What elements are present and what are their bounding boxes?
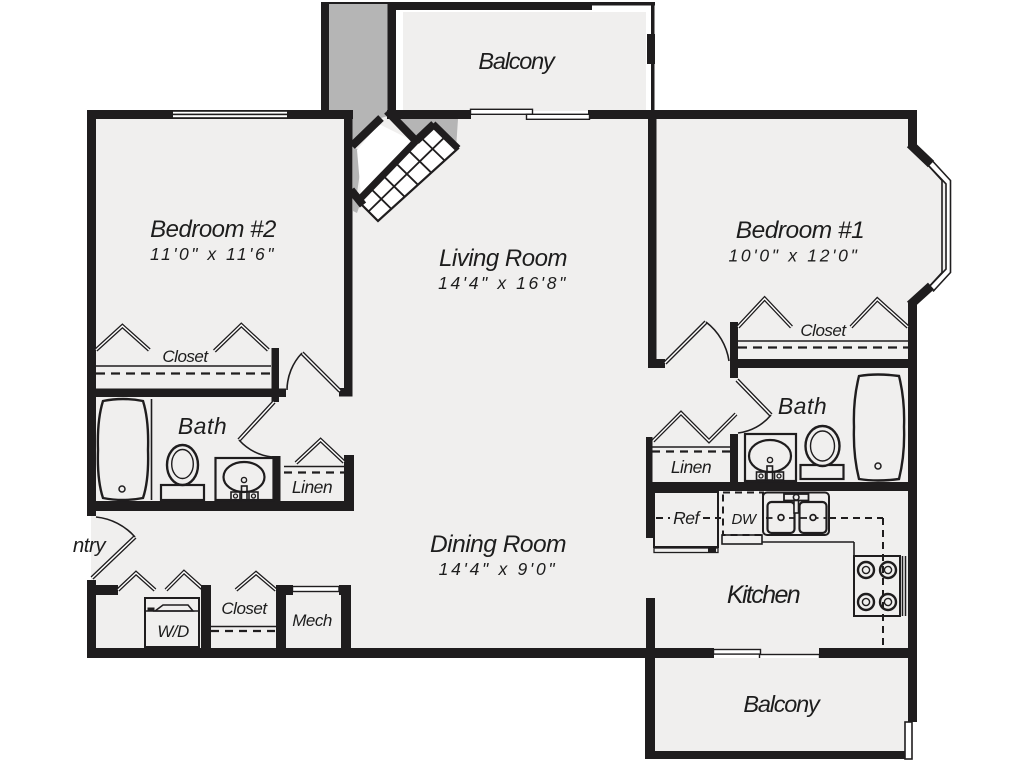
svg-text:Mech: Mech [292, 611, 332, 630]
svg-text:Bedroom #2: Bedroom #2 [150, 216, 276, 243]
svg-text:Bath: Bath [178, 413, 227, 439]
svg-text:Bath: Bath [778, 393, 827, 419]
svg-text:Kitchen: Kitchen [727, 581, 800, 609]
svg-text:Closet: Closet [162, 347, 209, 366]
svg-text:Balcony: Balcony [743, 691, 821, 717]
svg-text:14'4" x 16'8": 14'4" x 16'8" [438, 273, 568, 293]
svg-text:DW: DW [732, 511, 758, 528]
svg-text:ntry: ntry [73, 534, 107, 557]
svg-text:14'4" x 9'0": 14'4" x 9'0" [439, 559, 558, 579]
svg-text:11'0" x 11'6": 11'0" x 11'6" [150, 244, 276, 264]
svg-text:Bedroom #1: Bedroom #1 [736, 217, 864, 244]
svg-text:Balcony: Balcony [478, 48, 556, 74]
svg-text:Dining Room: Dining Room [430, 531, 566, 558]
svg-text:Linen: Linen [292, 477, 332, 497]
svg-text:Closet: Closet [221, 599, 268, 618]
svg-text:W/D: W/D [157, 622, 189, 641]
svg-text:10'0" x 12'0": 10'0" x 12'0" [728, 246, 859, 266]
svg-text:Linen: Linen [671, 457, 711, 477]
svg-text:Closet: Closet [800, 321, 847, 340]
svg-text:Living Room: Living Room [439, 245, 567, 272]
svg-text:Ref: Ref [673, 508, 701, 528]
